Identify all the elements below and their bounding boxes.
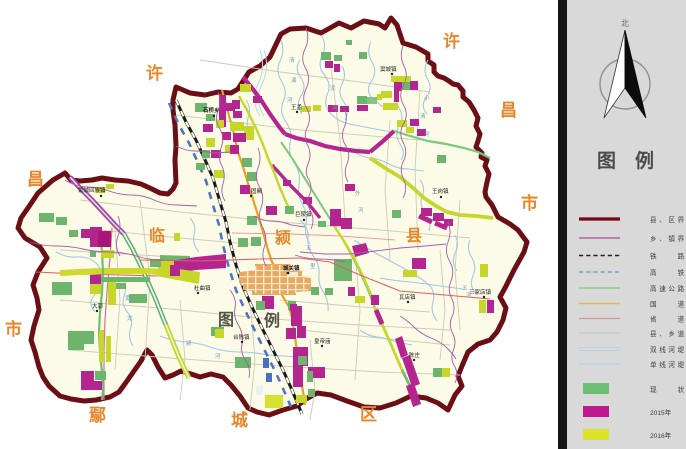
- svg-text:台陈镇: 台陈镇: [233, 333, 250, 341]
- svg-text:昌: 昌: [500, 101, 517, 120]
- svg-text:龙: 龙: [127, 314, 133, 322]
- svg-text:河: 河: [332, 104, 338, 112]
- svg-text:市: 市: [5, 319, 22, 339]
- svg-text:皇帝庙: 皇帝庙: [314, 337, 331, 345]
- svg-text:河: 河: [287, 96, 293, 104]
- svg-text:乡、镇界: 乡、镇界: [650, 234, 686, 243]
- svg-text:高速公路: 高速公路: [650, 284, 686, 293]
- svg-text:高铁: 高铁: [650, 268, 686, 277]
- svg-text:河: 河: [358, 206, 364, 214]
- svg-text:小: 小: [424, 94, 430, 102]
- svg-text:许: 许: [443, 31, 460, 51]
- svg-text:现状: 现状: [650, 385, 686, 394]
- svg-text:省道: 省道: [650, 315, 686, 324]
- svg-text:昌: 昌: [27, 170, 44, 189]
- svg-text:杜曲镇: 杜曲镇: [194, 284, 211, 292]
- svg-text:鄢: 鄢: [89, 406, 106, 425]
- svg-text:潩: 潩: [291, 76, 297, 84]
- svg-text:许: 许: [146, 63, 163, 83]
- svg-text:县: 县: [406, 227, 422, 245]
- svg-text:里: 里: [310, 263, 316, 270]
- svg-text:陈庄: 陈庄: [409, 351, 421, 359]
- svg-text:河: 河: [215, 352, 221, 360]
- svg-text:单线河堤: 单线河堤: [650, 360, 686, 369]
- svg-text:铁路: 铁路: [650, 252, 686, 261]
- svg-text:例: 例: [264, 311, 280, 330]
- svg-text:颍: 颍: [186, 339, 192, 347]
- svg-text:图例: 图例: [597, 149, 673, 172]
- svg-text:市: 市: [521, 193, 538, 213]
- svg-text:城关镇: 城关镇: [283, 264, 300, 272]
- svg-text:河: 河: [424, 130, 430, 138]
- svg-text:城: 城: [231, 411, 248, 430]
- svg-text:瓦店镇: 瓦店镇: [399, 293, 416, 301]
- svg-text:清: 清: [420, 112, 426, 120]
- svg-text:清: 清: [289, 56, 295, 64]
- svg-text:固厢: 固厢: [251, 188, 263, 195]
- svg-text:颍: 颍: [274, 229, 291, 247]
- svg-text:窦城镇: 窦城镇: [380, 65, 397, 73]
- svg-text:黄: 黄: [125, 294, 131, 302]
- svg-text:2015年: 2015年: [650, 408, 672, 417]
- svg-text:大郭: 大郭: [92, 302, 104, 310]
- svg-text:外: 外: [355, 189, 361, 197]
- svg-text:巨陵镇: 巨陵镇: [295, 210, 312, 218]
- svg-text:河: 河: [466, 291, 472, 299]
- svg-text:区: 区: [360, 405, 377, 424]
- svg-text:五: 五: [462, 285, 468, 292]
- svg-text:王孟: 王孟: [291, 103, 303, 111]
- svg-text:双线河堤: 双线河堤: [650, 345, 686, 354]
- svg-text:繁城回族镇: 繁城回族镇: [78, 186, 106, 194]
- svg-text:五: 五: [306, 245, 312, 252]
- svg-text:王岗镇: 王岗镇: [432, 187, 449, 195]
- svg-text:石桥乡: 石桥乡: [202, 106, 220, 114]
- svg-text:三家店镇: 三家店镇: [469, 288, 492, 296]
- svg-text:县、乡道: 县、乡道: [650, 329, 686, 338]
- svg-text:图: 图: [218, 311, 234, 329]
- svg-text:国道: 国道: [650, 300, 686, 309]
- svg-text:2016年: 2016年: [650, 431, 672, 440]
- svg-text:临: 临: [149, 226, 165, 245]
- svg-text:县、区界: 县、区界: [650, 216, 686, 224]
- svg-text:北: 北: [621, 19, 629, 28]
- svg-text:泥: 泥: [330, 84, 336, 92]
